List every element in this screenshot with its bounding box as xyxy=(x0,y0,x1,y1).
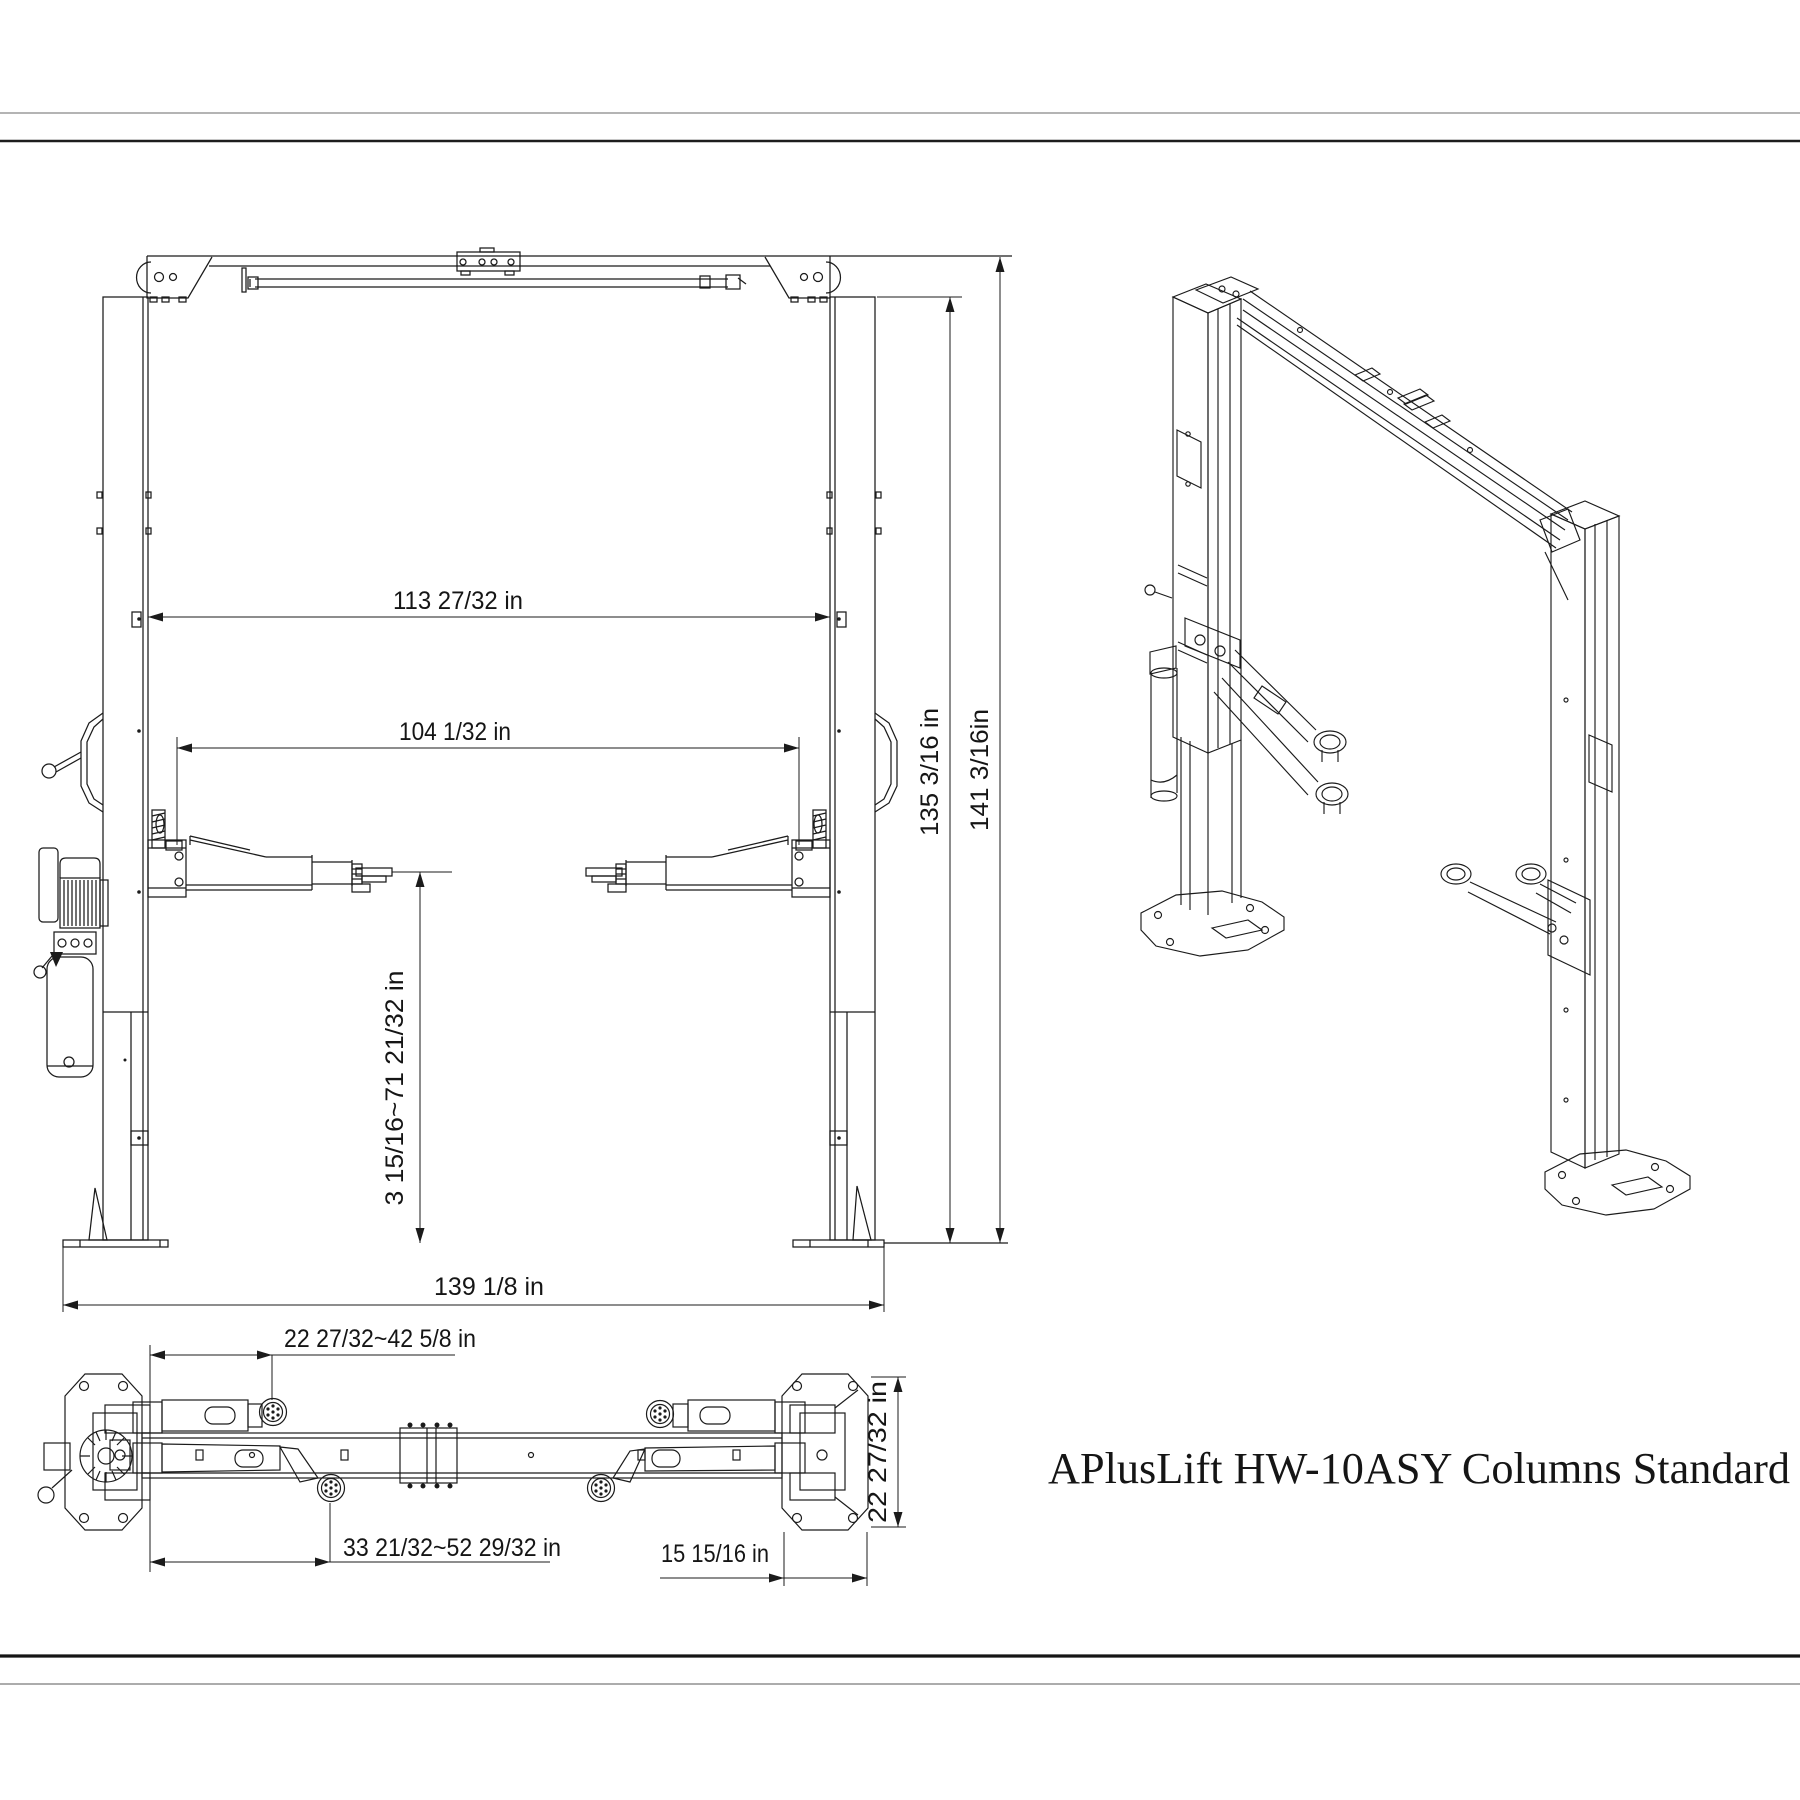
plan-beam-connector xyxy=(400,1428,457,1483)
right-column xyxy=(827,297,881,1240)
dim-drive-through-width: 104 1/32 in xyxy=(399,718,511,746)
plan-right-arms xyxy=(588,1390,859,1515)
top-beam xyxy=(147,248,1012,292)
handle-knob xyxy=(42,764,56,778)
front-view: 113 27/32 in 104 1/32 in 135 3/16 in 141… xyxy=(34,248,1012,1312)
iso-right-column xyxy=(1551,501,1619,1168)
drawing-page: 113 27/32 in 104 1/32 in 135 3/16 in 141… xyxy=(0,0,1800,1800)
dim-rear-arm-reach: 33 21/32~52 29/32 in xyxy=(343,1534,561,1562)
plan-beam xyxy=(142,1423,782,1489)
left-carriage-arm xyxy=(148,810,392,897)
iso-base-plates xyxy=(1141,891,1690,1215)
drawing-title: APlusLift HW-10ASY Columns Standard xyxy=(1048,1444,1790,1493)
dim-base-plate-width: 15 15/16 in xyxy=(661,1540,769,1568)
dim-overall-base-width: 139 1/8 in xyxy=(434,1273,544,1301)
dim-pad-height-range: 3 15/16~71 21/32 in xyxy=(381,971,409,1206)
plan-left-arms xyxy=(133,1399,345,1502)
iso-crossbeam xyxy=(1196,277,1580,600)
top-view: 22 27/32~42 5/8 in 33 21/32~52 29/32 in … xyxy=(38,1325,906,1586)
right-hex-cover xyxy=(875,713,897,812)
plan-right-base xyxy=(782,1374,868,1530)
iso-right-arms xyxy=(1441,864,1590,975)
left-top-plate xyxy=(137,256,212,302)
isometric-view xyxy=(1141,277,1690,1215)
dim-inside-columns-width: 113 27/32 in xyxy=(393,587,523,615)
iso-left-arms xyxy=(1185,618,1348,814)
plan-power-unit xyxy=(38,1430,132,1503)
left-column xyxy=(97,297,151,1240)
dim-column-height: 135 3/16 in xyxy=(916,708,944,836)
right-carriage-arm xyxy=(586,810,830,897)
oil-tank xyxy=(47,957,93,1077)
left-hex-cover xyxy=(42,713,103,812)
dim-overall-height: 141 3/16in xyxy=(966,709,994,831)
manifold-block xyxy=(54,932,96,954)
right-top-plate xyxy=(765,256,840,302)
iso-left-column xyxy=(1145,284,1241,915)
base-plates xyxy=(63,1186,1008,1247)
front-view-dimensions xyxy=(63,257,1005,1312)
power-unit xyxy=(34,848,108,1077)
drawing-canvas: 113 27/32 in 104 1/32 in 135 3/16 in 141… xyxy=(0,0,1800,1800)
dim-base-plate-depth: 22 27/32 in xyxy=(864,1381,892,1523)
dim-front-arm-reach: 22 27/32~42 5/8 in xyxy=(284,1325,476,1353)
